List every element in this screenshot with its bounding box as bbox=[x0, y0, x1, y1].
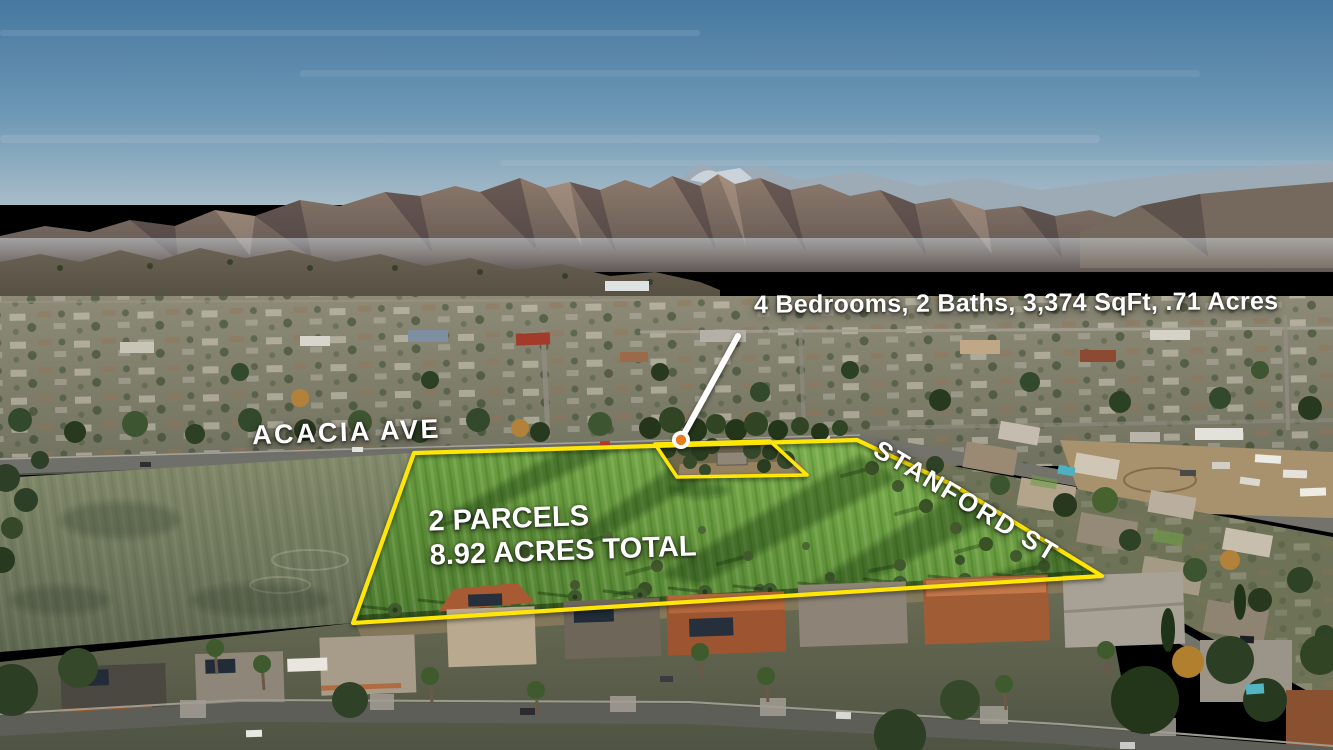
callout-marker-dot-icon bbox=[676, 435, 686, 445]
parcel-summary-label: 2 PARCELS 8.92 ACRES TOTAL bbox=[428, 495, 697, 572]
property-details-label: 4 Bedrooms, 2 Baths, 3,374 SqFt, .71 Acr… bbox=[754, 287, 1279, 320]
scene-art bbox=[0, 0, 1333, 750]
street-label-acacia: ACACIA AVE bbox=[252, 414, 442, 452]
aerial-listing-photo: 4 Bedrooms, 2 Baths, 3,374 SqFt, .71 Acr… bbox=[0, 0, 1333, 750]
house-on-lot bbox=[717, 452, 747, 466]
sky bbox=[0, 0, 1333, 205]
